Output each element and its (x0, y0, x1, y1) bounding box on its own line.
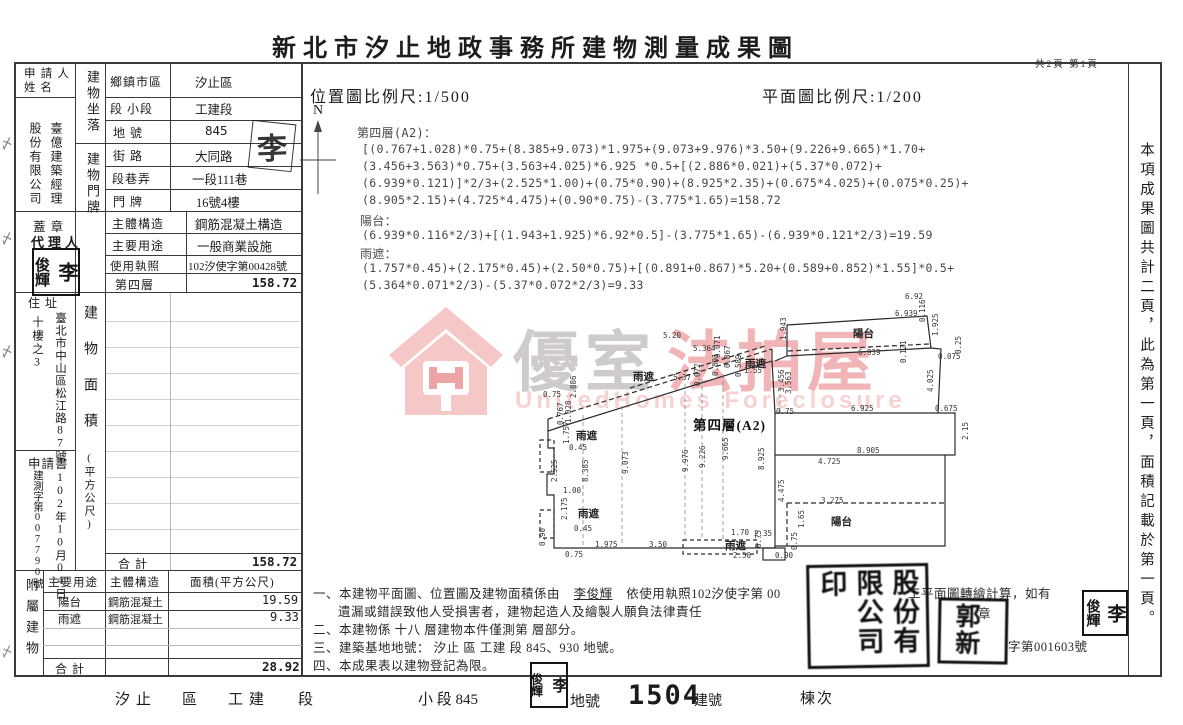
north-label: N (313, 103, 323, 119)
frame-bottom (14, 675, 1161, 677)
plan-dim-label: 2.886 (569, 375, 578, 398)
plan-dim-label: 1.65 (797, 510, 806, 528)
attached-header-use: 主要用途 (48, 574, 98, 590)
plan-dim-label: 8.385 (581, 459, 590, 482)
note-line1-suffix: 依使用執照102汐使字第 00 (626, 587, 780, 601)
panel-line (43, 628, 302, 629)
formula-floor-label: 第四層(A2)： (357, 124, 436, 141)
row-lane-label: 段巷弄 (112, 170, 151, 187)
plan-dim-label: 0.072 (693, 363, 702, 386)
plan-dim-label: 2.175 (560, 497, 569, 520)
license-label: 使用執照 (110, 258, 160, 274)
surveyor-seal: 俊輝 李 (1082, 590, 1128, 636)
note-frag-right3: 字第001603號 (1008, 636, 1088, 655)
surveyor-seal-left: 俊輝 (1082, 599, 1102, 627)
panel-line (168, 570, 169, 675)
plan-dim-label: 0.675 (935, 404, 958, 413)
registrar-seal: 郭新 (937, 597, 1008, 664)
plan-dim-label: 2.15 (961, 422, 970, 440)
row-section-value: 工建段 (195, 99, 233, 118)
plan-dim-label: 陽台 (831, 514, 852, 529)
address-left: 十樓之3 (29, 316, 45, 371)
footer-seal-left: 俊輝 (529, 673, 546, 697)
plan-dim-label: 4.475 (777, 479, 786, 502)
floor4-value: 158.72 (252, 275, 297, 290)
applicant-name-right: 臺億建築經理 (48, 122, 65, 206)
panel-line (75, 62, 76, 570)
note-line1-prefix: 一、本建物平面圖、位置圖及建物面積係由 (313, 587, 560, 601)
row-number-value: 16號4樓 (196, 192, 240, 211)
formula-floor-line4: (8.905*2.15)+(4.725*4.475)+(0.90*0.75)-(… (362, 193, 781, 207)
note-line4: 三、建築基地地號： 汐止 區 工建 段 845、930 地號。 (313, 637, 622, 656)
row-street-value: 大同路 (195, 146, 233, 165)
attached-row1-use: 雨遮 (58, 611, 81, 627)
area-total-value: 158.72 (252, 554, 297, 569)
company-seal-text: 臺億建築經理股份有限公司印 (813, 567, 930, 664)
floor-plan: 6.926.9390.116陽台1.9431.9256.9390.1210.07… (535, 288, 1040, 578)
plan-dim-label: 雨遮 (578, 506, 599, 521)
plan-dim-label: 0.116 (918, 299, 927, 322)
footer-building-no: 1504 (628, 680, 701, 711)
plan-dim-label: 2.525 (550, 459, 559, 482)
area-unit: (平方公尺) (81, 452, 97, 532)
plan-dim-label: 6.939 (858, 348, 881, 357)
door-label: 建物門牌 (83, 152, 102, 216)
area-empty-rows (106, 296, 300, 551)
plan-dim-label: 0.891 (711, 353, 720, 376)
house-gavel-icon (385, 303, 507, 425)
plan-dim-label: 0.867 (723, 345, 732, 368)
plan-dim-label: 0.75 (754, 530, 763, 548)
margin-mark: 〆 (0, 340, 15, 361)
signature-char: 李 (256, 123, 288, 168)
footer-district: 汐止 (115, 688, 157, 709)
plan-dim-label: 第四層(A2) (693, 414, 766, 434)
plan-dim-label: 0.75 (776, 407, 794, 416)
attached-row0-structure: 鋼筋混凝土 (108, 594, 163, 610)
plan-dim-label: 4.025 (926, 369, 935, 392)
footer-section: 工建 (228, 688, 270, 709)
plan-dim-label: 1.925 (931, 313, 940, 336)
formula-floor-line1: [(0.767+1.028)*0.75+(8.385+9.073)*1.975+… (362, 142, 925, 156)
formula-canopy-label: 雨遮： (360, 245, 397, 262)
application-no: 建測字第007790號 (30, 470, 45, 589)
row-section-label: 段 小段 (110, 100, 153, 117)
plan-dim-label: 8.905 (857, 446, 880, 455)
divider-right-strip (1128, 62, 1129, 675)
attached-header-structure: 主體構造 (110, 574, 160, 590)
floor4-label: 第四層 (115, 276, 154, 293)
survey-document-page: 新北市汐止地政事務所建物測量成果圖 共2頁 第1頁 申請人姓 名 臺億建築經理 … (0, 0, 1183, 725)
attached-header-area: 面積(平方公尺) (190, 574, 275, 590)
page-title: 新北市汐止地政事務所建物測量成果圖 (272, 28, 799, 63)
plan-dim-label: 陽台 (853, 326, 874, 341)
row-street-label: 街 路 (113, 147, 143, 164)
panel-line (105, 189, 302, 190)
plan-dim-label: 2.50 (733, 551, 751, 560)
frame-left (14, 62, 16, 677)
floor-plan-labels: 6.926.9390.116陽台1.9431.9256.9390.1210.07… (535, 288, 1040, 578)
address-right: 臺北市中山區松江路87號 (52, 312, 68, 463)
margin-mark: 〆 (0, 227, 15, 248)
applicant-label: 申請人姓 名 (24, 67, 70, 95)
plan-dim-label: 3.563 (784, 371, 793, 394)
plan-dim-label: 0.90 (775, 551, 793, 560)
row-township-value: 汐止區 (195, 72, 233, 91)
panel-line (43, 610, 302, 611)
formula-canopy-line1: (1.757*0.45)+(2.175*0.45)+(2.50*0.75)+[(… (362, 261, 954, 275)
row-lane-value: 一段111巷 (192, 169, 247, 188)
panel-line (14, 97, 75, 98)
attached-total-value: 28.92 (262, 659, 300, 674)
plan-dim-label: 4.725 (818, 457, 841, 466)
formula-floor-line2: (3.456+3.563)*0.75+(3.563+4.025)*6.925 *… (362, 159, 882, 173)
plan-dim-label: 雨遮 (633, 369, 654, 384)
attached-total-label: 合 計 (55, 660, 85, 677)
plan-dim-label: 9.226 (698, 445, 707, 468)
formula-floor-line3: (6.939*0.121)]*2/3+(2.525*1.00)+(0.75*0.… (362, 176, 969, 190)
plan-dim-label: 雨遮 (576, 428, 597, 443)
plan-dim-label: 1.00 (563, 486, 581, 495)
plan-dim-label: 0.90 (538, 528, 547, 546)
structure-value: 鋼筋混凝土構造 (195, 214, 283, 233)
margin-mark: 〆 (0, 132, 15, 153)
attached-row1-area: 9.33 (270, 610, 299, 624)
row-parcel-label: 地 號 (113, 124, 143, 141)
panel-line (186, 211, 187, 292)
panel-line (105, 233, 302, 234)
plan-dim-label: 0.589 (734, 354, 743, 377)
footer-seal-right: 李 (546, 677, 570, 693)
plan-dim-label: 9.976 (681, 449, 690, 472)
applicant-name-left: 股份有限公司 (27, 122, 44, 206)
company-seal: 臺億建築經理股份有限公司印 (806, 563, 930, 669)
footer-subsection: 小 段 845 (418, 688, 478, 709)
plan-dim-label: 5.37 (673, 373, 691, 382)
plan-dim-label: 5.20 (663, 331, 681, 340)
plan-dim-label: 0.75 (565, 550, 583, 559)
surveyor-seal-right: 李 (1102, 604, 1129, 623)
structure-label: 主體構造 (112, 215, 164, 232)
note-line1-name: 李俊輝 (574, 587, 613, 601)
plan-dim-label: 0.75 (790, 532, 799, 550)
attached-row0-area: 19.59 (262, 593, 298, 607)
row-number-label: 門 牌 (113, 193, 143, 210)
plan-dim-label: 1.028 (564, 400, 573, 423)
panel-line (105, 120, 302, 121)
plan-dim-label: 0.25 (954, 336, 963, 354)
registrar-seal-text: 郭新 (947, 603, 984, 660)
note-line1: 一、本建物平面圖、位置圖及建物面積係由 李俊輝 依使用執照102汐使字第 00 (313, 583, 781, 602)
attached-row1-structure: 鋼筋混凝土 (108, 611, 163, 627)
plan-dim-label: 1.975 (595, 540, 618, 549)
attached-side-label: 附屬建物 (22, 578, 41, 662)
agent-seal-right-text: 李 (52, 262, 81, 282)
attached-row0-use: 陽台 (58, 594, 81, 610)
plan-dim-label: 3.50 (649, 540, 667, 549)
plan-dim-label: 3.275 (821, 496, 844, 505)
plan-dim-label: 0.75 (543, 390, 561, 399)
footer-parcel-word: 地號 (570, 690, 600, 711)
use-value: 一般商業設施 (197, 236, 272, 255)
plan-scale: 平面圖比例尺:1/200 (762, 83, 923, 107)
footer-seal: 俊輝 李 (530, 662, 568, 708)
frame-right (1160, 62, 1162, 677)
plan-dim-label: 1.70 (731, 528, 749, 537)
footer-district-word: 區 (182, 688, 197, 709)
plan-dim-label: 9.073 (621, 451, 630, 474)
address-label: 住 址 (28, 294, 58, 311)
panel-line (105, 255, 302, 256)
plan-dim-label: 9.665 (721, 437, 730, 460)
note-line3: 二、本建物係 十八 層建物本件僅測第 層部分。 (313, 619, 584, 638)
north-arrow-icon (296, 118, 340, 198)
agent-seal: 俊輝 李 (32, 248, 80, 296)
formula-balcony-line1: (6.939*0.116*2/3)+[(1.943+1.925)*6.92*0.… (362, 228, 933, 242)
signature-seal: 李 (248, 120, 297, 172)
row-township-label: 鄉鎮市區 (110, 73, 162, 90)
agent-seal-left-text: 俊輝 (31, 257, 52, 287)
note-line2: 遺漏或錯誤致他人受損害者，建物起造人及繪製人願負法律責任 (338, 601, 702, 620)
plan-dim-label: 0.45 (574, 524, 592, 533)
note-line5: 四、本成果表以建物登記為限。 (313, 655, 495, 674)
plan-dim-label: 0.45 (569, 443, 587, 452)
footer-building-word: 建號 (694, 690, 722, 710)
location-label: 建物坐落 (83, 70, 102, 134)
plan-dim-label: 6.925 (851, 404, 874, 413)
plan-dim-label: 6.939 (895, 309, 918, 318)
panel-line (43, 645, 302, 646)
footer-section-word: 段 (298, 688, 313, 709)
license-value: 102汐使字第00428號 (188, 258, 287, 274)
area-label: 建物面積 (79, 305, 99, 449)
plan-dim-label: 1.55 (744, 366, 762, 375)
location-scale: 位置圖比例尺:1/500 (310, 83, 471, 107)
panel-line (14, 211, 302, 212)
plan-dim-label: 1.943 (779, 317, 788, 340)
area-total-label: 合 計 (118, 555, 148, 572)
formula-balcony-label: 陽台： (360, 212, 397, 229)
footer-order-word: 棟次 (800, 687, 834, 708)
use-label: 主要用途 (112, 237, 164, 254)
frame-top (14, 62, 1161, 64)
plan-dim-label: 0.121 (899, 340, 908, 363)
plan-dim-label: 8.925 (757, 447, 766, 470)
side-note: 本項成果圖共計二頁，此為第一頁，面積記載於第一頁。 (1136, 142, 1157, 622)
margin-mark: 〆 (0, 640, 15, 661)
row-parcel-value: 845 (205, 123, 228, 138)
panel-line (105, 97, 302, 98)
